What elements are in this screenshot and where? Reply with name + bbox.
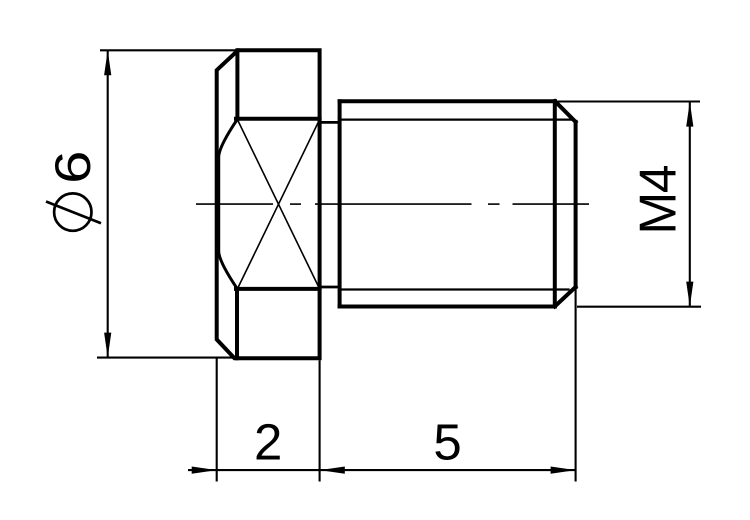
svg-text:5: 5 bbox=[433, 414, 461, 471]
svg-text:6: 6 bbox=[45, 151, 101, 184]
svg-text:M4: M4 bbox=[629, 165, 687, 234]
svg-text:2: 2 bbox=[254, 414, 282, 471]
